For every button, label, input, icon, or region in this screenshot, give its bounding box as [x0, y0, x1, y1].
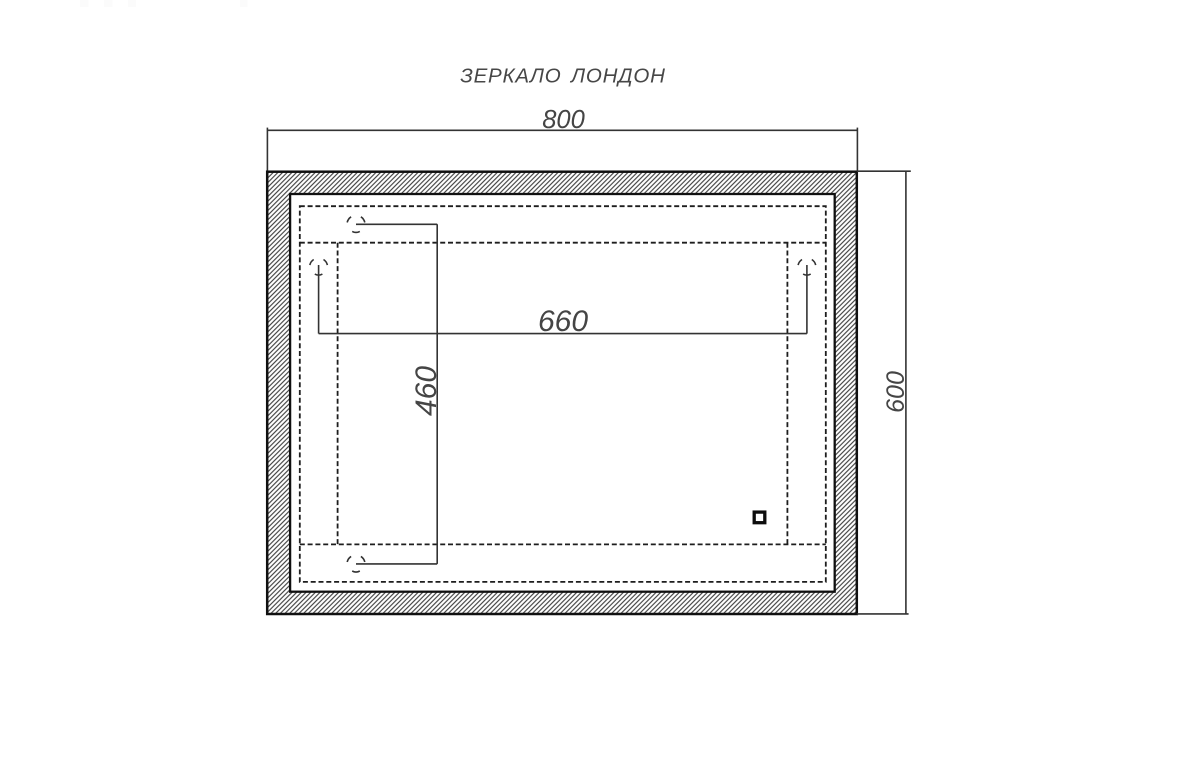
- svg-text:660: 660: [538, 305, 588, 338]
- svg-text:800: 800: [542, 106, 585, 134]
- svg-text:ЗЕРКАЛО ЛОНДОН: ЗЕРКАЛО ЛОНДОН: [460, 65, 666, 88]
- svg-text:600: 600: [882, 371, 910, 413]
- svg-text:460: 460: [410, 366, 443, 416]
